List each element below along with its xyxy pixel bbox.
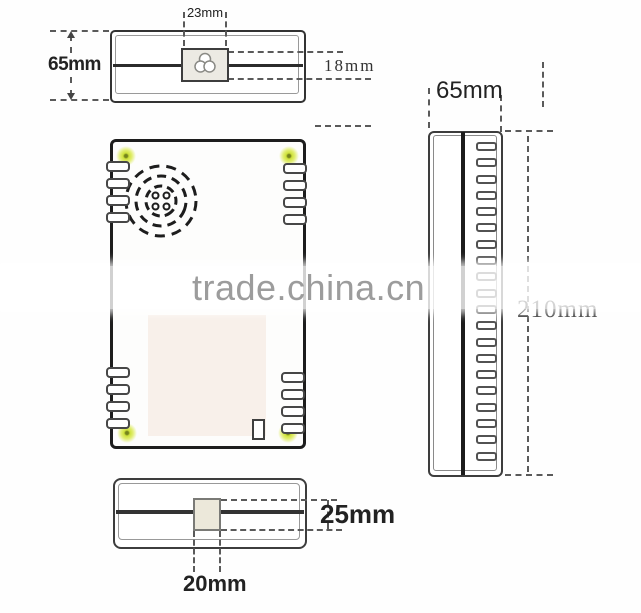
dim-label-body-depth: 65mm <box>48 54 90 76</box>
vent-slot <box>106 178 130 189</box>
vent-slot <box>283 214 307 225</box>
vent-slot <box>476 256 497 265</box>
vent-slot <box>476 158 497 167</box>
vent-slot <box>106 384 130 395</box>
dim-extension-line <box>428 88 430 128</box>
vent-slot <box>281 423 305 434</box>
dim-extension-line <box>219 531 221 572</box>
vent-slot <box>476 338 497 347</box>
top-view-connector-block <box>181 48 229 82</box>
dim-extension-line <box>228 51 343 53</box>
vent-slot <box>476 191 497 200</box>
dim-line <box>542 62 544 107</box>
vent-slot <box>476 403 497 412</box>
dim-label-block-height: 25mm <box>320 499 395 530</box>
vent-slot <box>476 452 497 461</box>
dim-arrow-icon <box>67 31 75 38</box>
vent-group-right-top <box>283 163 307 225</box>
dim-label-connector-height: 18mm <box>324 56 375 76</box>
vent-slot <box>476 435 497 444</box>
vent-slot <box>476 354 497 363</box>
vent-slot <box>106 367 130 378</box>
vent-slot <box>283 180 307 191</box>
vent-slot <box>106 401 130 412</box>
vent-slot <box>106 161 130 172</box>
vent-slot <box>476 240 497 249</box>
vent-slot <box>106 195 130 206</box>
dim-extension-line <box>228 78 371 80</box>
vent-group-left-bottom <box>106 367 130 429</box>
vent-slot <box>281 372 305 383</box>
vent-slot <box>281 406 305 417</box>
dim-extension-line <box>50 30 109 32</box>
vent-slot <box>283 197 307 208</box>
dim-label-side-depth: 65mm <box>436 77 502 105</box>
vent-slot <box>476 370 497 379</box>
dim-extension-line <box>50 99 109 101</box>
bottom-view-mount-block <box>193 498 221 531</box>
vent-slot <box>106 418 130 429</box>
dim-arrow-icon <box>67 93 75 100</box>
front-view-label-panel <box>148 315 266 436</box>
dim-extension-line <box>193 531 195 572</box>
vent-slot <box>283 163 307 174</box>
fan-grille-icon <box>121 161 201 246</box>
watermark-band: trade.china.cn <box>0 266 641 309</box>
output-socket <box>252 419 265 440</box>
dim-extension-line <box>315 125 371 127</box>
dim-label-block-width: 20mm <box>183 571 247 597</box>
vent-slot <box>106 212 130 223</box>
dim-extension-line <box>505 130 553 132</box>
vent-group-left-top <box>106 161 130 223</box>
vent-slot <box>476 223 497 232</box>
vent-slot <box>476 142 497 151</box>
vent-slot <box>476 321 497 330</box>
vent-slot <box>476 419 497 428</box>
vent-slot <box>476 386 497 395</box>
watermark-text: trade.china.cn <box>192 266 425 309</box>
vent-slot <box>476 207 497 216</box>
technical-drawing: 23mm 65mm 18mm <box>0 0 641 613</box>
clover-socket-icon <box>192 51 218 80</box>
dim-label-connector-width: 23mm <box>183 5 227 20</box>
vent-group-right-bottom <box>281 372 305 434</box>
vent-slot <box>281 389 305 400</box>
vent-slot <box>476 175 497 184</box>
dim-extension-line <box>505 474 553 476</box>
